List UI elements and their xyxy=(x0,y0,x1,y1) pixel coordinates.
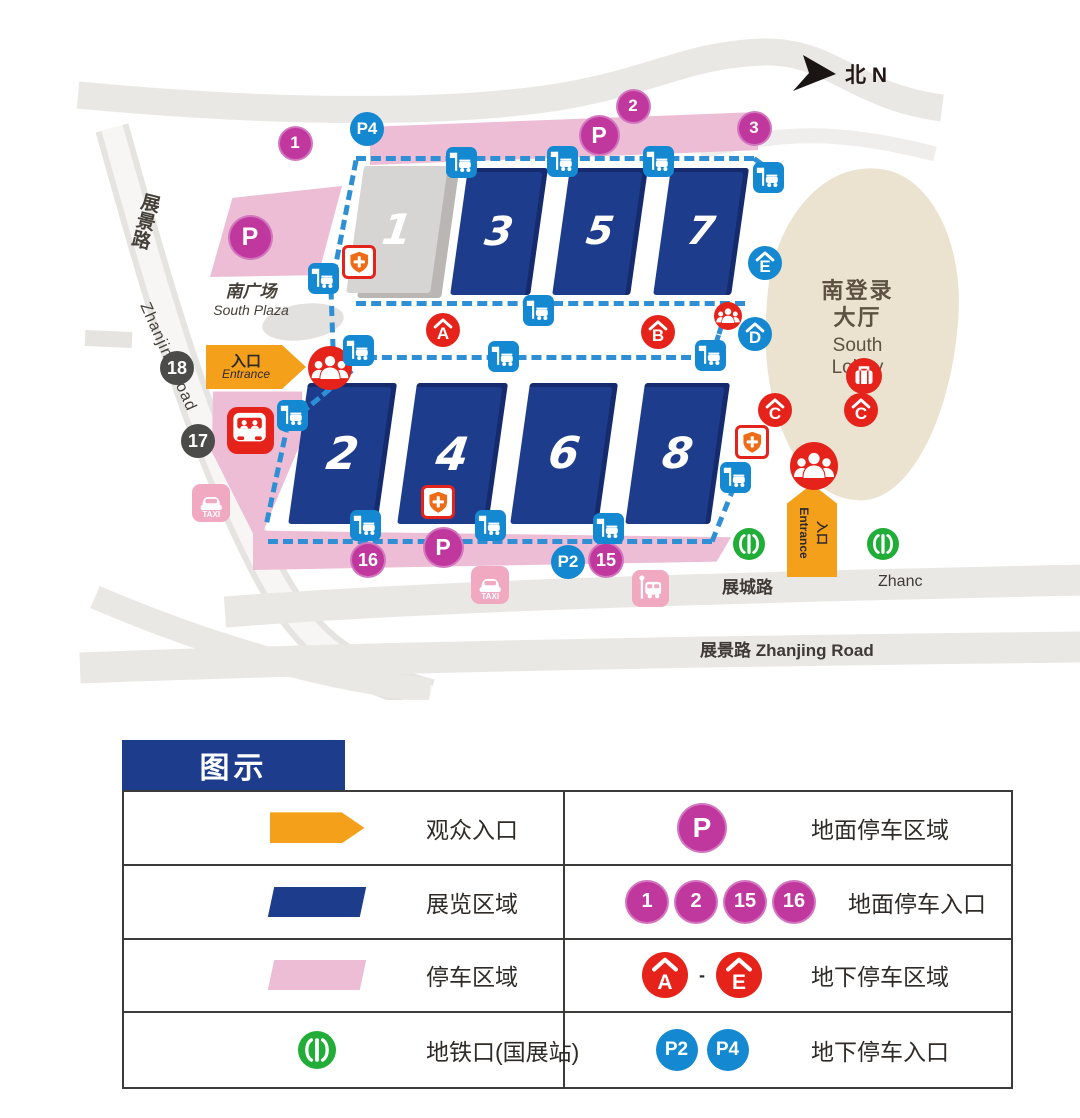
legend-row-right-1: 121516地面停车入口 xyxy=(565,866,1011,940)
ground-parking-area-plaza: P xyxy=(230,217,271,258)
legend-symbol-underground-a: A xyxy=(642,952,688,998)
hall-number: 1 xyxy=(379,205,415,254)
zhancheng-road-label: 展城路 xyxy=(722,578,773,598)
shuttle-stop-icon xyxy=(753,162,784,193)
parking-zone-letter: C xyxy=(844,404,878,424)
zhanjing-road-bottom-label: 展景路 Zhanjing Road xyxy=(700,641,874,661)
legend-row-left-3: 地铁口(国展站) xyxy=(124,1013,565,1087)
legend-label: 停车区域 xyxy=(426,958,518,992)
legend-row-left-0: 观众入口 xyxy=(124,792,565,866)
south-plaza-label-en: South Plaza xyxy=(196,302,306,318)
shuttle-stop-icon xyxy=(643,146,674,177)
taxi-stand-south: TAXI xyxy=(471,566,509,604)
legend-row-right-0: P地面停车区域 xyxy=(565,792,1011,866)
shuttle-route-segment xyxy=(352,355,706,360)
ground-parking-entrance-16: 16 xyxy=(352,544,384,576)
shuttle-stop-icon xyxy=(547,146,578,177)
legend-label: 地下停车区域 xyxy=(811,958,949,992)
shuttle-stop-icon xyxy=(488,341,519,372)
ground-parking-area-top: P xyxy=(581,117,618,154)
hall-number: 5 xyxy=(583,209,616,254)
parking-zone-letter: C xyxy=(758,404,792,424)
south-entrance-label-en: Entrance xyxy=(795,490,813,576)
legend-row-left-1: 展览区域 xyxy=(124,866,565,940)
south-entrance-label: 入口 Entrance xyxy=(795,490,831,576)
shuttle-stop-icon xyxy=(343,335,374,366)
legend-label: 展览区域 xyxy=(426,885,518,919)
zhancheng-road-label-en: Zhanc xyxy=(878,573,922,591)
legend-symbol-16: 16 xyxy=(774,882,814,922)
ground-parking-entrance-3: 3 xyxy=(739,113,770,144)
south-plaza-label-zh: 南广场 xyxy=(196,282,306,302)
legend-symbols: P xyxy=(627,805,777,851)
bus-stop-south xyxy=(632,570,669,607)
legend-table: 观众入口P地面停车区域展览区域121516地面停车入口停车区域 A- E地下停车… xyxy=(122,790,1013,1089)
hall-number: 2 xyxy=(323,427,362,480)
parking-zone-letter: B xyxy=(641,326,675,346)
ground-parking-entrance-2: 2 xyxy=(618,91,649,122)
north-arrow-icon xyxy=(793,55,837,93)
legend-row-right-2: A- E地下停车区域 xyxy=(565,940,1011,1014)
legend-symbols: 121516 xyxy=(627,882,814,922)
hall-number: 3 xyxy=(482,209,516,255)
metro-exit-west xyxy=(733,528,765,560)
north-label: 北 N xyxy=(845,59,887,89)
legend-symbol-2: 2 xyxy=(676,882,716,922)
medical-point-hall4 xyxy=(421,485,455,519)
legend-range-dash: - xyxy=(699,965,705,986)
hall-number: 8 xyxy=(659,429,696,479)
underground-parking-entrance-p4: P4 xyxy=(350,112,384,146)
north-indicator: 北 N xyxy=(793,55,887,93)
legend-symbols: P2P4 xyxy=(627,1029,777,1071)
shuttle-stop-icon xyxy=(720,462,751,493)
legend-label: 地下停车入口 xyxy=(811,1033,949,1067)
west-entrance-label-en: Entrance xyxy=(210,367,282,381)
parking-zone-letter: A xyxy=(426,324,460,344)
taxi-stand-west: TAXI xyxy=(192,484,230,522)
legend-symbol-1: 1 xyxy=(627,882,667,922)
ground-parking-area-bottom: P xyxy=(425,529,462,566)
hall-number: 4 xyxy=(433,427,473,481)
parking-area-icon xyxy=(242,960,392,990)
underground-parking-area-a: A xyxy=(426,313,460,347)
shuttle-stop-icon xyxy=(523,295,554,326)
medical-point-lobby xyxy=(735,425,769,459)
legend-row-right-3: P2P4地下停车入口 xyxy=(565,1013,1011,1087)
shuttle-stop-icon xyxy=(695,340,726,371)
exhibition-area-icon xyxy=(242,887,392,917)
shuttle-stop-icon xyxy=(350,510,381,541)
legend-title: 图示 xyxy=(122,740,345,790)
legend-symbol-p4: P4 xyxy=(707,1029,749,1071)
underground-parking-entrance-p2: P2 xyxy=(551,545,585,579)
ground-parking-entrance-1: 1 xyxy=(280,128,311,159)
legend-label: 地面停车入口 xyxy=(848,885,986,919)
visitor-entrance-south xyxy=(790,442,838,490)
legend-symbol-underground-e: E xyxy=(716,952,762,998)
site-map: 13572468 1P42P3P181716PP215 A B C C D E xyxy=(0,0,1080,700)
parking-zone-letter: E xyxy=(716,971,762,995)
shuttle-stop-icon xyxy=(308,263,339,294)
legend: 图示 观众入口P地面停车区域展览区域121516地面停车入口停车区域 A- E地… xyxy=(122,740,1013,1089)
underground-parking-area-e: E xyxy=(748,246,782,280)
gate-17: 17 xyxy=(181,424,215,458)
underground-parking-area-c2: C xyxy=(844,393,878,427)
legend-symbol-p2: P2 xyxy=(656,1029,698,1071)
parking-zone-letter: E xyxy=(748,257,782,277)
ground-parking-entrance-15: 15 xyxy=(590,544,622,576)
underground-parking-area-b: B xyxy=(641,315,675,349)
south-lobby-label-zh1: 南登录 xyxy=(800,278,915,303)
shuttle-stop-icon xyxy=(277,400,308,431)
shuttle-bus-terminal xyxy=(227,407,274,454)
shuttle-stop-icon xyxy=(593,513,624,544)
south-entrance-label-zh: 入口 xyxy=(813,490,831,576)
south-lobby-label-en1: South xyxy=(800,335,915,357)
luggage-deposit xyxy=(846,358,882,394)
legend-row-left-2: 停车区域 xyxy=(124,940,565,1014)
svg-text:TAXI: TAXI xyxy=(202,510,220,519)
gate-18: 18 xyxy=(160,351,194,385)
legend-symbols: A- E xyxy=(627,952,777,998)
legend-label: 地铁口(国展站) xyxy=(426,1033,579,1067)
legend-label: 观众入口 xyxy=(426,811,518,845)
underground-parking-area-d: D xyxy=(738,317,772,351)
visitor-entrance-mid xyxy=(714,302,742,330)
entrance-arrow-icon xyxy=(242,812,392,843)
metro-icon xyxy=(242,1031,392,1069)
metro-exit-east xyxy=(867,528,899,560)
svg-text:TAXI: TAXI xyxy=(481,592,499,601)
parking-zone-letter: A xyxy=(642,971,688,995)
legend-symbol-p: P xyxy=(679,805,725,851)
exhibition-center-map-page: 13572468 1P42P3P181716PP215 A B C C D E xyxy=(0,0,1080,1118)
south-lobby-label-zh2: 大厅 xyxy=(800,305,915,330)
underground-parking-area-c1: C xyxy=(758,393,792,427)
hall-number: 7 xyxy=(684,209,717,254)
shuttle-stop-icon xyxy=(446,147,477,178)
hall-number: 6 xyxy=(545,428,583,479)
legend-symbol-15: 15 xyxy=(725,882,765,922)
shuttle-stop-icon xyxy=(475,510,506,541)
parking-zone-letter: D xyxy=(738,328,772,348)
legend-label: 地面停车区域 xyxy=(811,811,949,845)
medical-point-hall1 xyxy=(342,245,376,279)
